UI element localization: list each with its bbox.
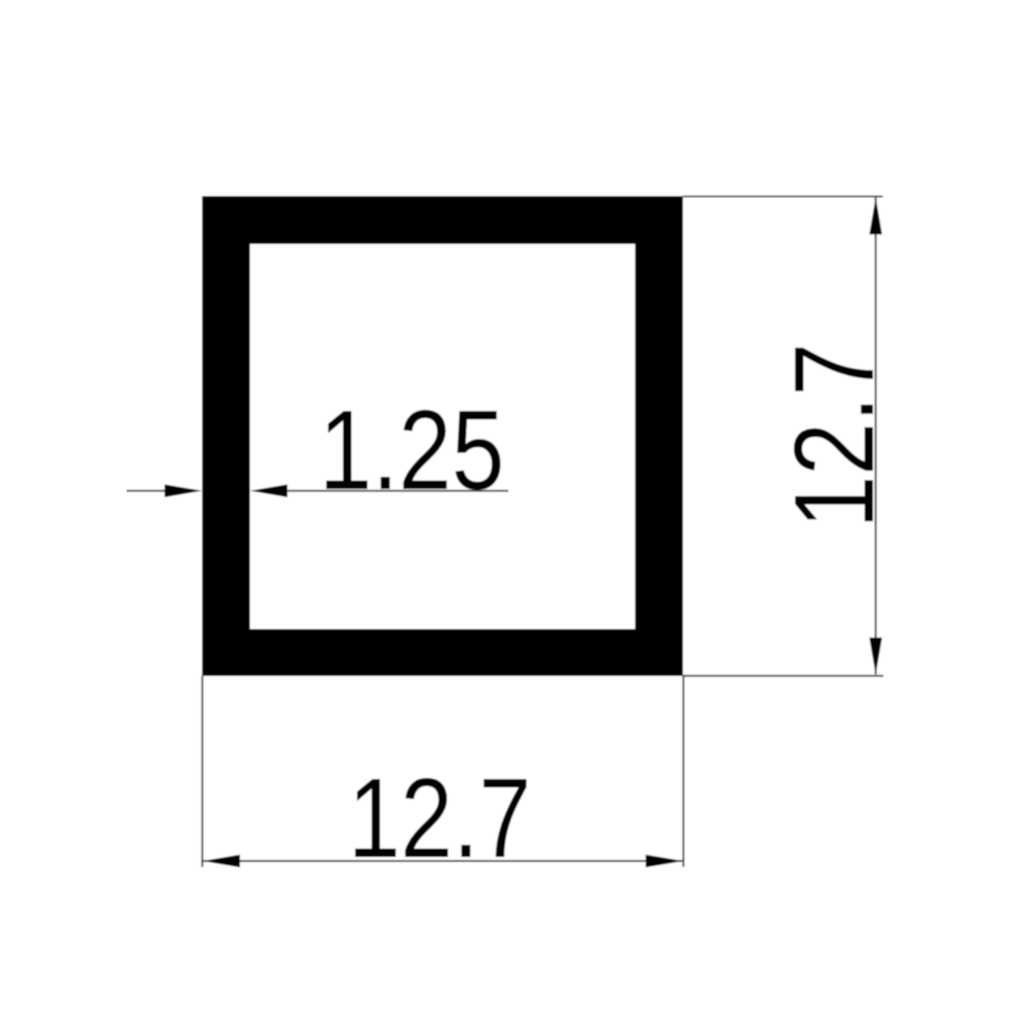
svg-text:12.7: 12.7 — [348, 756, 531, 882]
svg-text:12.7: 12.7 — [771, 343, 898, 529]
svg-text:1.25: 1.25 — [319, 387, 505, 514]
